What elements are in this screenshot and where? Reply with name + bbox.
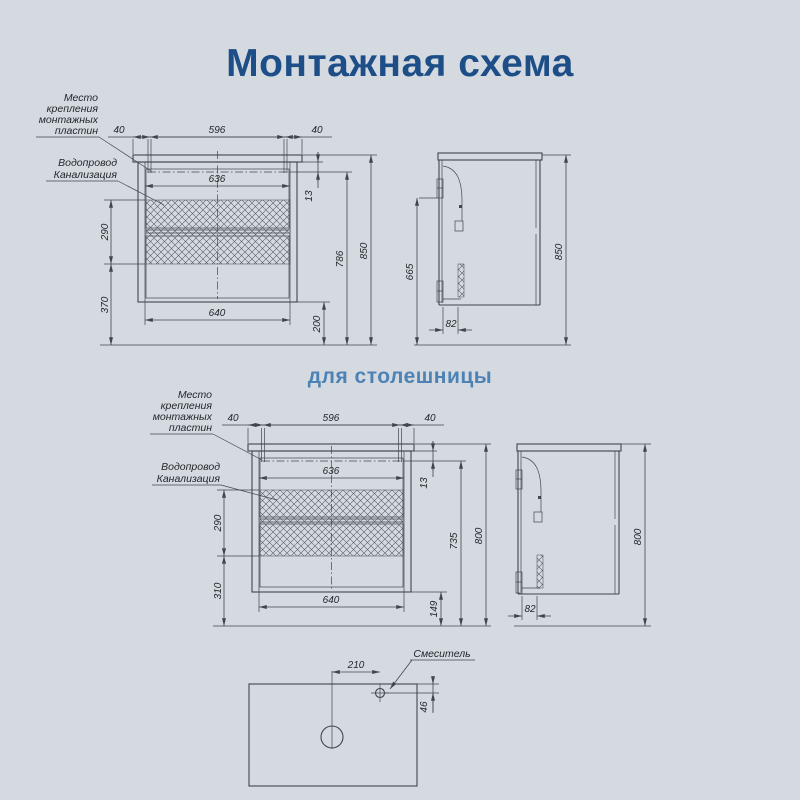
countertop-plan-view: 210 46 Смеситель [249, 648, 475, 786]
section-subtitle: для столешницы [308, 365, 492, 388]
dim-inner-width-bottom: 640 [209, 308, 226, 319]
dim-plate-line-height: 735 [449, 532, 460, 549]
dim-mixer-offset-from-center: 210 [347, 660, 365, 671]
plumbing-leader [118, 181, 164, 205]
wall-unit-front-view: 40 596 40 636 13 290 370 640 200 786 [100, 125, 377, 345]
dim-plate-offset-left: 40 [113, 125, 125, 136]
service-zone-hatch [146, 200, 290, 264]
dim-plate-spacing: 596 [323, 413, 340, 424]
svg-text:пластин: пластин [169, 422, 212, 434]
wall-unit-side-view: 665 82 850 [405, 153, 571, 345]
dim-mixer-offset-from-edge: 46 [419, 701, 430, 713]
dim-plate-drop: 13 [419, 477, 430, 489]
mounting-plates-leader [213, 434, 262, 460]
mixer-label: Смеситель [413, 648, 470, 660]
installation-diagram: Монтажная схема для столешницы 40 596 40… [0, 0, 800, 800]
dim-side-total-height: 800 [633, 528, 644, 545]
dim-inner-width-top: 636 [323, 466, 340, 477]
dim-cabinet-floor-gap: 200 [312, 315, 323, 333]
dim-service-zone-floor-offset: 370 [100, 296, 111, 313]
countertop-unit-side-view: 82 800 [508, 444, 651, 626]
svg-text:Канализация: Канализация [157, 473, 221, 485]
dim-plate-depth: 82 [524, 604, 536, 615]
dim-service-zone-height: 290 [100, 223, 111, 241]
countertop-unit-front-view: 40 596 40 636 13 290 310 640 149 735 800 [213, 413, 491, 626]
dim-plate-spacing: 596 [209, 125, 226, 136]
dim-plate-depth: 82 [445, 319, 457, 330]
dim-plate-offset-left: 40 [227, 413, 239, 424]
dim-inner-width-bottom: 640 [323, 595, 340, 606]
dim-plate-offset-right: 40 [311, 125, 323, 136]
dim-cabinet-floor-gap: 149 [429, 600, 440, 617]
svg-text:Канализация: Канализация [54, 169, 118, 181]
dim-plate-to-floor: 665 [405, 263, 416, 280]
installation-diagram-page: Монтажная схема для столешницы 40 596 40… [0, 0, 800, 800]
dim-total-height: 850 [359, 242, 370, 259]
page-title: Монтажная схема [226, 42, 574, 85]
plumbing-label: Водопровод [161, 461, 220, 473]
plumbing-label: Водопровод [58, 157, 117, 169]
dim-plate-drop: 13 [304, 190, 315, 202]
mixer-leader [390, 660, 412, 689]
dim-service-zone-height: 290 [213, 514, 224, 532]
dim-inner-width-top: 636 [209, 174, 226, 185]
dim-plate-line-height: 786 [335, 250, 346, 267]
svg-text:пластин: пластин [55, 125, 98, 137]
dim-plate-offset-right: 40 [424, 413, 436, 424]
dim-side-total-height: 850 [554, 243, 565, 260]
dim-service-zone-floor-offset: 310 [213, 582, 224, 599]
dim-total-height: 800 [474, 527, 485, 544]
